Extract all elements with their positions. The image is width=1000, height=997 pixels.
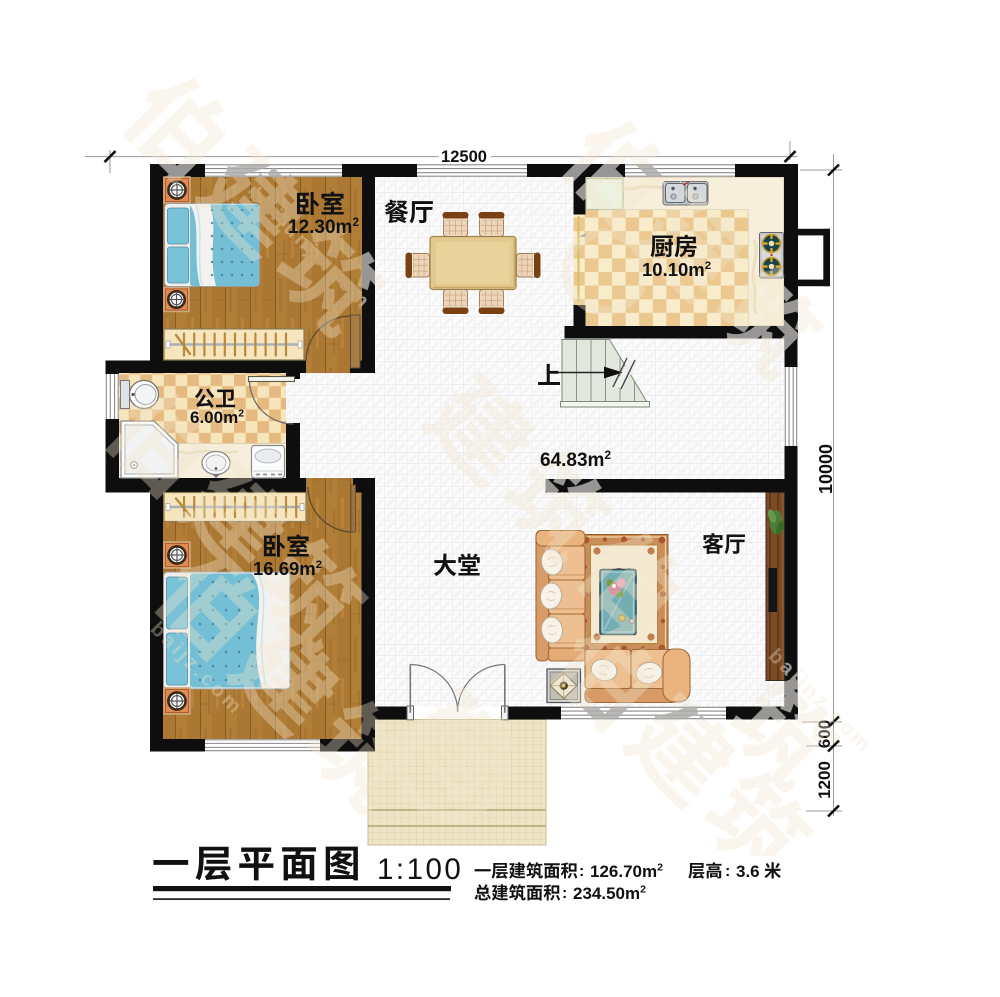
svg-text:10000: 10000	[816, 444, 836, 494]
svg-text::: :	[579, 863, 584, 880]
svg-text:234.50m2: 234.50m2	[573, 884, 646, 903]
svg-text::: :	[562, 885, 567, 902]
svg-text:10.10m2: 10.10m2	[642, 259, 711, 280]
svg-text:1200: 1200	[815, 761, 834, 799]
svg-text:16.69m2: 16.69m2	[253, 558, 322, 579]
svg-text:1:100: 1:100	[377, 853, 463, 886]
svg-text:126.70m2: 126.70m2	[590, 862, 663, 881]
svg-text:6.00m2: 6.00m2	[190, 408, 244, 427]
svg-text:64.83m2: 64.83m2	[540, 449, 611, 471]
svg-text:3.6: 3.6	[736, 862, 760, 881]
svg-text:12.30m2: 12.30m2	[288, 216, 359, 238]
svg-text:12500: 12500	[441, 148, 487, 166]
svg-text::: :	[725, 863, 730, 880]
